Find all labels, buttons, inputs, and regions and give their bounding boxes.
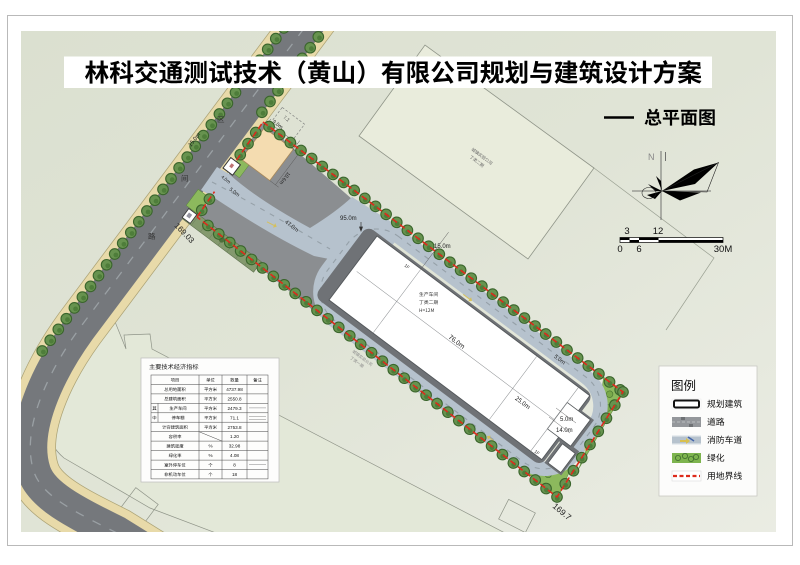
svg-text:18: 18 bbox=[232, 472, 238, 477]
svg-text:12: 12 bbox=[653, 226, 664, 237]
svg-text:2550.8: 2550.8 bbox=[227, 396, 241, 401]
svg-text:30M: 30M bbox=[714, 244, 733, 255]
svg-text:%: % bbox=[208, 444, 212, 449]
svg-text:71.1: 71.1 bbox=[230, 415, 239, 420]
svg-text:32.98: 32.98 bbox=[229, 444, 241, 449]
svg-text:4737.98: 4737.98 bbox=[226, 387, 243, 392]
svg-text:95.0m: 95.0m bbox=[340, 216, 357, 222]
svg-text:0: 0 bbox=[617, 244, 622, 255]
svg-text:1.20: 1.20 bbox=[230, 434, 239, 439]
svg-text:N: N bbox=[648, 152, 655, 162]
svg-text:6: 6 bbox=[636, 244, 641, 255]
svg-text:2479.3: 2479.3 bbox=[227, 406, 241, 411]
svg-text:%: % bbox=[208, 453, 212, 458]
svg-text:4.08: 4.08 bbox=[230, 453, 239, 458]
svg-text:3: 3 bbox=[624, 226, 629, 237]
svg-text:5.0m: 5.0m bbox=[560, 417, 573, 423]
svg-text:8: 8 bbox=[233, 463, 236, 468]
svg-text:15.0m: 15.0m bbox=[434, 244, 451, 250]
svg-text:2753.8: 2753.8 bbox=[227, 425, 241, 430]
